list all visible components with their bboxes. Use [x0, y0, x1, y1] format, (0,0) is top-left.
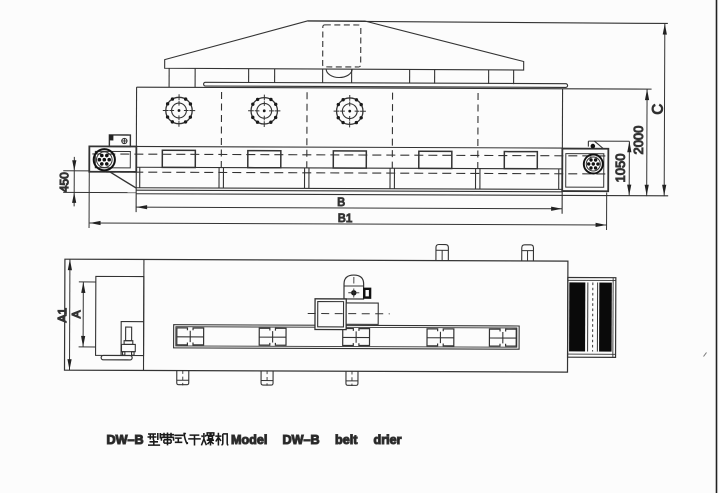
svg-text:450: 450: [57, 172, 71, 192]
svg-text:2000: 2000: [631, 126, 646, 155]
svg-text:DW–B: DW–B: [283, 433, 320, 447]
svg-text:A: A: [69, 310, 83, 318]
svg-text:Model: Model: [231, 433, 267, 447]
svg-text:B1: B1: [338, 211, 353, 225]
svg-text:belt: belt: [335, 433, 358, 447]
svg-text:DW–B: DW–B: [107, 433, 144, 447]
svg-text:1050: 1050: [613, 154, 628, 183]
svg-text:drier: drier: [374, 433, 402, 447]
svg-text:C: C: [649, 104, 666, 115]
svg-text:B: B: [337, 195, 345, 209]
svg-text:A1: A1: [55, 307, 69, 322]
